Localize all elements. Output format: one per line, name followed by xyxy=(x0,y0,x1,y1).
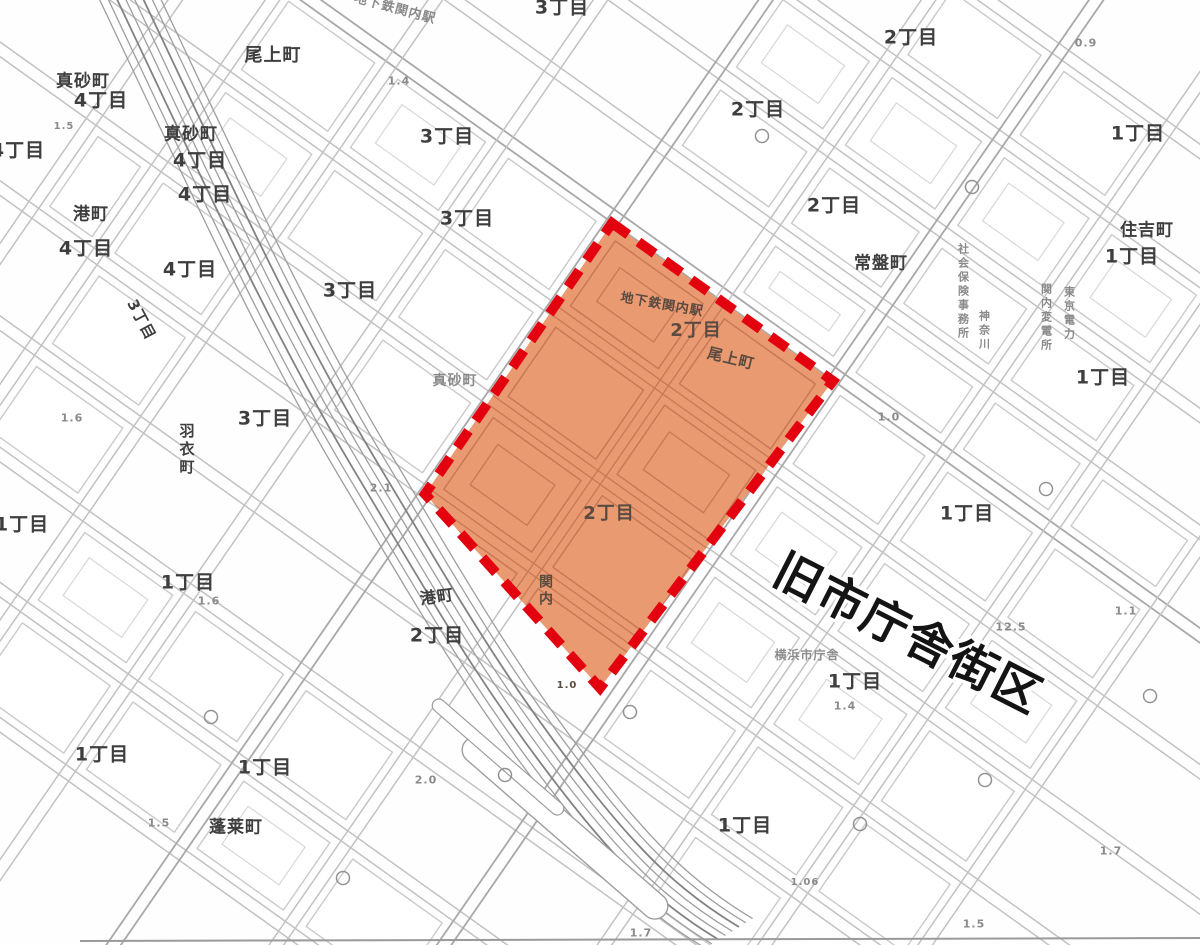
map-label: 2丁目 xyxy=(670,322,722,340)
map-label: 1.5 xyxy=(963,919,986,930)
map-label: 関内変電所 xyxy=(1041,283,1052,353)
map-label: 2丁目 xyxy=(410,627,464,646)
map-label: 2丁目 xyxy=(583,505,635,523)
map-label: 1丁目 xyxy=(75,746,129,765)
map-label: 4丁目 xyxy=(74,92,128,111)
map-label: 1.06 xyxy=(791,878,820,888)
map-label: 1.4 xyxy=(388,76,411,87)
map-label: 2丁目 xyxy=(884,29,938,48)
map-label: 1丁目 xyxy=(1111,125,1165,144)
map-label: 1.0 xyxy=(557,681,578,691)
map-label: 4丁目 xyxy=(178,186,232,205)
map-label: 4丁目 xyxy=(0,142,45,161)
map-label: 3丁目 xyxy=(323,282,377,301)
map-label: 東京電力 xyxy=(1064,286,1075,342)
map-label: 1丁目 xyxy=(718,817,772,836)
map-label: 港町 xyxy=(419,587,455,608)
map-label: 1丁目 xyxy=(1105,248,1159,267)
map-label: 地下鉄関内駅 xyxy=(353,0,438,26)
map-label: 1.7 xyxy=(630,928,653,939)
map-label: 1丁目 xyxy=(161,574,215,593)
map-label: 2.0 xyxy=(415,775,438,786)
map-label: 羽衣町 xyxy=(179,423,194,477)
map-label: 常盤町 xyxy=(854,256,908,273)
map-label: 神奈川 xyxy=(979,310,990,352)
map-label: 地下鉄関内駅 xyxy=(620,291,705,318)
map-label: 4丁目 xyxy=(59,240,113,259)
map-label: 2.1 xyxy=(370,483,393,494)
map-label: 2丁目 xyxy=(807,197,861,216)
map-label: 1丁目 xyxy=(1076,369,1130,388)
map-label: 尾上町 xyxy=(245,47,302,65)
map-label: 真砂町 xyxy=(433,374,478,388)
map-label: 1丁目 xyxy=(828,673,882,692)
map-label: 1.7 xyxy=(1100,846,1123,857)
map-canvas: 真砂町4丁目尾上町4丁目真砂町4丁目4丁目港町4丁目4丁目3丁目3丁目3丁目地下… xyxy=(0,0,1200,945)
map-label: 1.5 xyxy=(54,122,75,132)
map-label: 横浜市庁舎 xyxy=(774,649,839,661)
map-label: 3丁目 xyxy=(440,210,494,229)
map-label: 1.1 xyxy=(1115,606,1138,617)
map-label: 4丁目 xyxy=(163,261,217,280)
map-label: 真砂町 xyxy=(164,127,218,144)
map-label: 関内 xyxy=(538,574,552,608)
map-label: 3丁目 xyxy=(420,128,474,147)
map-labels-layer: 真砂町4丁目尾上町4丁目真砂町4丁目4丁目港町4丁目4丁目3丁目3丁目3丁目地下… xyxy=(0,0,1200,945)
map-label: 1.6 xyxy=(198,596,221,607)
map-label: 真砂町 xyxy=(56,74,110,91)
map-label: 蓬莱町 xyxy=(209,820,263,837)
map-label: 4丁目 xyxy=(173,152,227,171)
map-label: 1.6 xyxy=(61,413,84,424)
map-label: 3丁目 xyxy=(238,410,292,429)
map-label: 1.0 xyxy=(878,412,901,423)
map-label: 港町 xyxy=(73,207,109,224)
map-label: 1.4 xyxy=(834,701,857,712)
map-label: 1丁目 xyxy=(238,759,292,778)
map-label: 0.9 xyxy=(1075,38,1098,49)
map-label: 社会保険事務所 xyxy=(958,243,969,341)
map-label: 1.5 xyxy=(148,818,171,829)
map-label: 住吉町 xyxy=(1120,223,1174,240)
map-label: 尾上町 xyxy=(706,346,756,372)
map-label: 12.5 xyxy=(995,622,1026,633)
map-label: 1丁目 xyxy=(0,516,49,535)
map-label: 3丁目 xyxy=(124,297,158,342)
map-label: 2丁目 xyxy=(731,101,785,120)
map-label: 1丁目 xyxy=(940,505,994,524)
map-label: 3丁目 xyxy=(535,0,589,18)
